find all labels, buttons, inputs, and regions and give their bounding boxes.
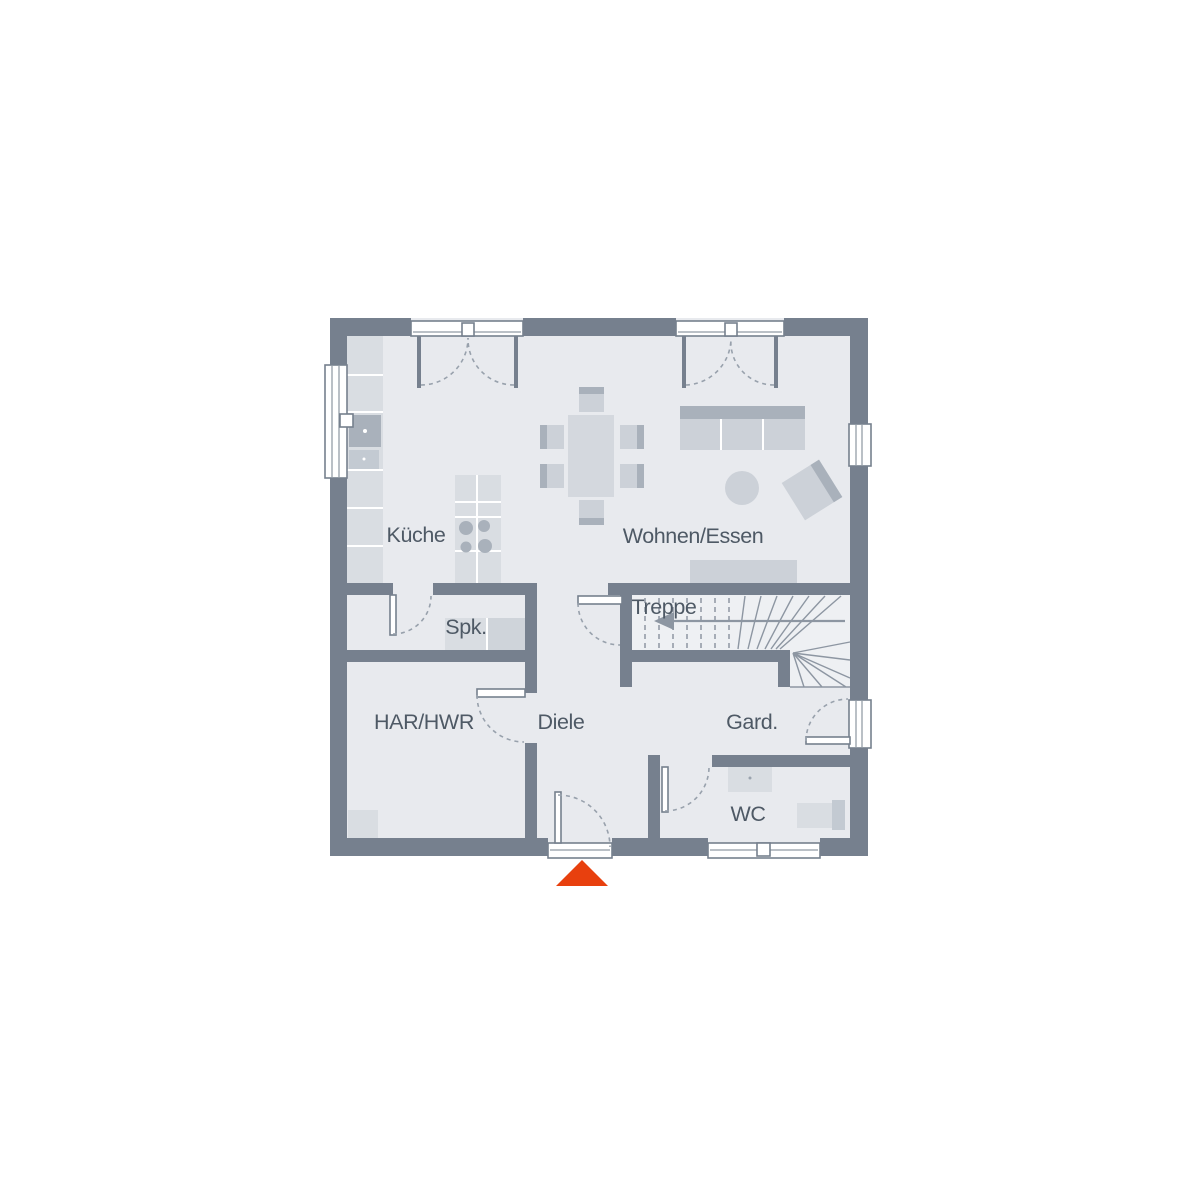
room-label-spk: Spk. bbox=[445, 615, 486, 639]
sideboard bbox=[690, 560, 797, 583]
window-handle bbox=[462, 323, 474, 336]
coffee-table bbox=[725, 471, 759, 505]
room-label-wohnen-essen: Wohnen/Essen bbox=[623, 524, 764, 548]
dining-table bbox=[568, 415, 614, 497]
window-handle bbox=[340, 414, 353, 427]
kitchen-counter bbox=[347, 336, 383, 583]
room-label-diele: Diele bbox=[538, 710, 585, 734]
window-handle bbox=[725, 323, 737, 336]
floor-plan: Küche Wohnen/Essen Spk. Treppe HAR/HWR D… bbox=[0, 0, 1200, 1200]
kitchen-island bbox=[455, 475, 501, 585]
utility-appliance bbox=[348, 810, 378, 838]
window-wc-bottom bbox=[708, 843, 820, 858]
window-living-right bbox=[849, 424, 871, 466]
window-handle bbox=[757, 843, 770, 856]
room-label-kueche: Küche bbox=[387, 523, 446, 547]
wc-sink bbox=[728, 767, 772, 792]
wc-toilet bbox=[797, 800, 845, 830]
entrance-marker-icon bbox=[556, 860, 608, 886]
room-label-har-hwr: HAR/HWR bbox=[374, 710, 474, 734]
room-label-treppe: Treppe bbox=[632, 595, 697, 619]
floor-plan-page: Küche Wohnen/Essen Spk. Treppe HAR/HWR D… bbox=[0, 0, 1200, 1200]
room-label-wc: WC bbox=[730, 802, 765, 826]
room-label-gard: Gard. bbox=[726, 710, 778, 734]
sofa bbox=[680, 406, 805, 450]
